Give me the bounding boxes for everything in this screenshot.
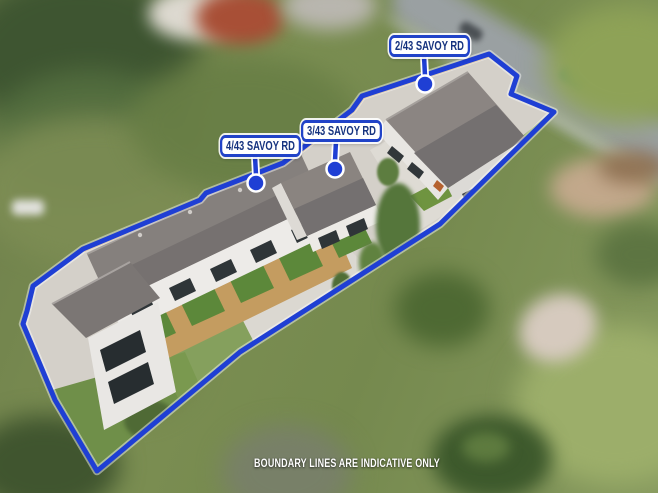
marker-label-2-43-savoy-rd: 2/43 SAVOY RD: [389, 35, 470, 57]
lot-bush-1: [377, 158, 399, 186]
roof-vent-3: [238, 188, 242, 192]
marker-label-text: 4/43 SAVOY RD: [226, 139, 295, 153]
marker-label-4-43-savoy-rd: 4/43 SAVOY RD: [220, 135, 301, 157]
marker-label-3-43-savoy-rd: 3/43 SAVOY RD: [301, 120, 382, 142]
aerial-photo: 2/43 SAVOY RD 3/43 SAVOY RD 4/43 SAVOY R…: [0, 0, 658, 493]
disclaimer-text: BOUNDARY LINES ARE INDICATIVE ONLY: [254, 458, 440, 470]
marker-label-text: 3/43 SAVOY RD: [307, 124, 376, 138]
roof-vent-1: [138, 233, 142, 237]
marker-label-text: 2/43 SAVOY RD: [395, 39, 464, 53]
site-overlay: [0, 0, 658, 493]
roof-vent-2: [188, 210, 192, 214]
property-interior: [23, 54, 600, 472]
